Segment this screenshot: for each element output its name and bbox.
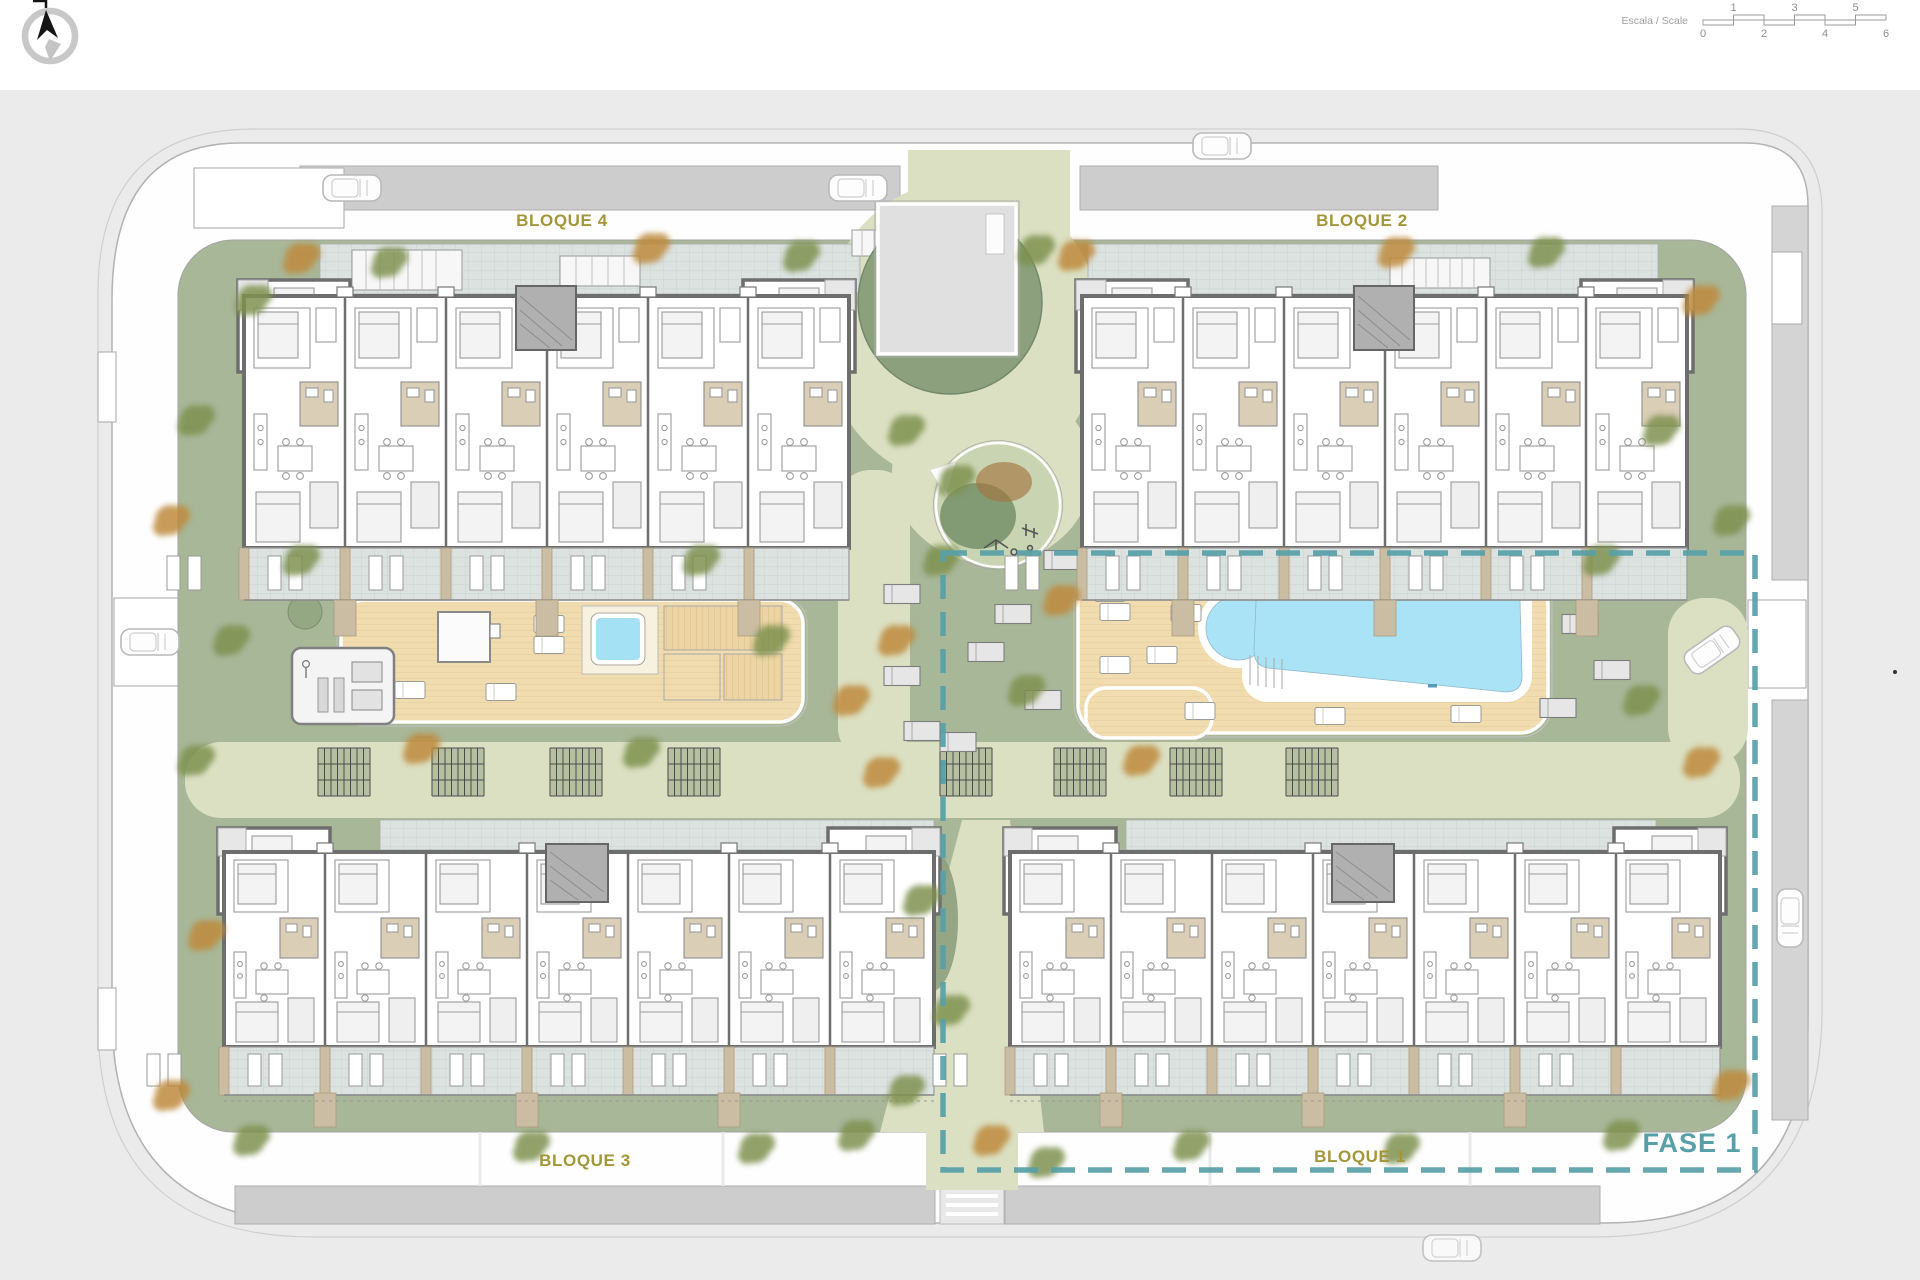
scale-tick: 3: [1791, 2, 1797, 14]
scale-tick: 4: [1822, 28, 1828, 40]
building-bloque-1: [933, 828, 1726, 1095]
gym: [292, 648, 394, 724]
label-bloque-3: BLOQUE 3: [539, 1151, 631, 1170]
central-garden-circle: [858, 201, 1042, 394]
building-bloque-4: [167, 280, 855, 600]
scale-tick: 2: [1761, 28, 1767, 40]
scale-tick: 6: [1883, 28, 1889, 40]
pedestrian-crossing: [940, 1186, 1004, 1224]
car: [1193, 133, 1251, 159]
scale-tick: 0: [1700, 28, 1706, 40]
plan-mark: [1893, 670, 1897, 674]
building-bloque-3: [147, 828, 940, 1095]
label-bloque-1: BLOQUE 1: [1314, 1147, 1406, 1166]
label-fase-1: FASE 1: [1642, 1128, 1741, 1158]
site-plan-drawing: Escala / Scale 1 3 5 0 2 4 6: [0, 0, 1920, 1280]
jacuzzi: [582, 606, 658, 674]
car: [829, 175, 887, 201]
scale-tick: 1: [1730, 2, 1736, 14]
scale-tick: 5: [1852, 2, 1858, 14]
pergola: [438, 612, 490, 662]
scale-bar-label: Escala / Scale: [1621, 15, 1688, 27]
label-bloque-2: BLOQUE 2: [1316, 211, 1408, 230]
site-plan-page: Escala / Scale 1 3 5 0 2 4 6: [0, 0, 1920, 1280]
car: [323, 175, 381, 201]
label-bloque-4: BLOQUE 4: [516, 211, 608, 230]
